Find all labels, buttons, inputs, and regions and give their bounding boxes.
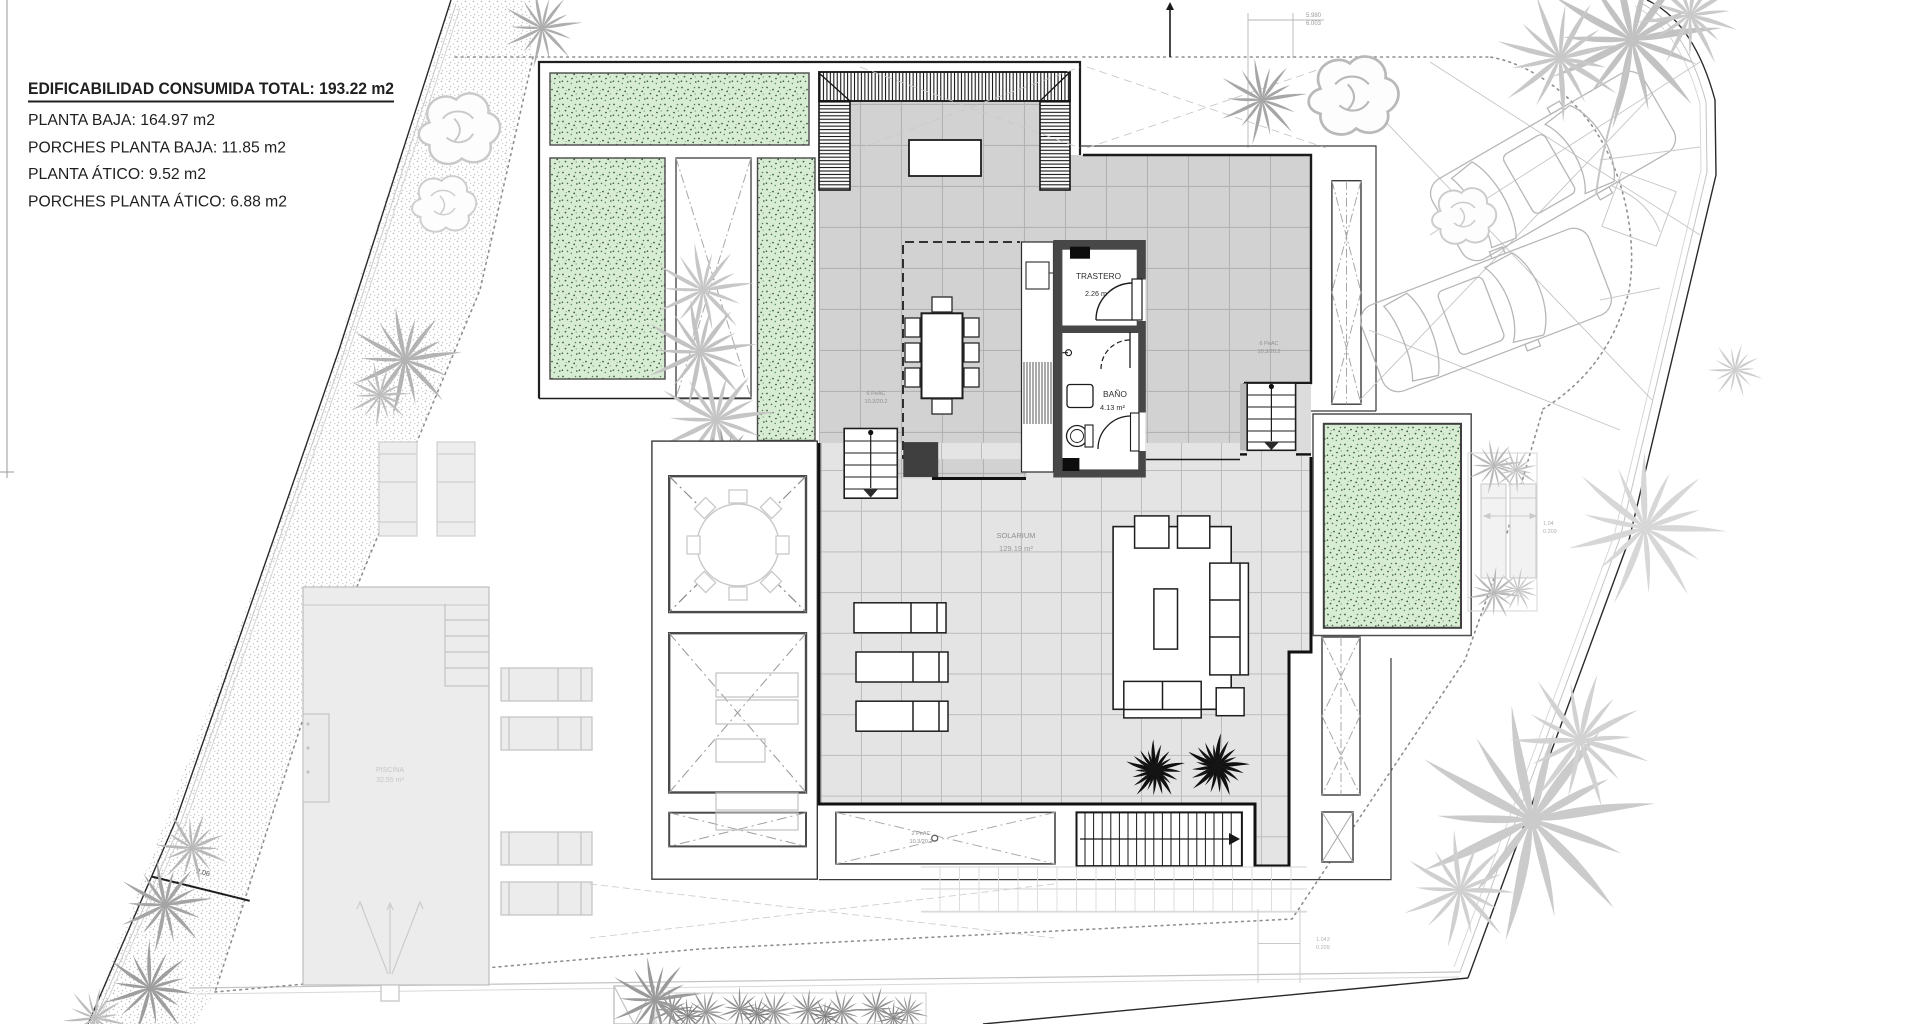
svg-text:PORCHES PLANTA ÁTICO: 6.88 m2: PORCHES PLANTA ÁTICO: 6.88 m2: [28, 194, 287, 211]
svg-text:0.209: 0.209: [1316, 945, 1330, 951]
svg-text:10.3/20.2: 10.3/20.2: [1258, 349, 1281, 355]
svg-text:6 PeAC: 6 PeAC: [1260, 341, 1279, 347]
svg-text:4.13 m²: 4.13 m²: [1100, 405, 1126, 412]
svg-text:SOLARIUM: SOLARIUM: [997, 531, 1036, 540]
svg-text:32.55 m²: 32.55 m²: [376, 777, 404, 784]
svg-text:EDIFICABILIDAD CONSUMIDA TOTAL: EDIFICABILIDAD CONSUMIDA TOTAL: 193.22 m…: [28, 80, 394, 98]
svg-text:BAÑO: BAÑO: [1103, 390, 1127, 399]
svg-text:6 PeAC: 6 PeAC: [867, 391, 886, 397]
svg-text:1.043: 1.043: [1316, 937, 1330, 943]
svg-text:TRASTERO: TRASTERO: [1076, 272, 1121, 281]
svg-text:2 PeAC: 2 PeAC: [912, 831, 931, 837]
svg-text:0.209: 0.209: [1543, 529, 1557, 535]
svg-text:6.003: 6.003: [1306, 21, 1322, 27]
svg-text:2.26 m: 2.26 m: [1085, 291, 1107, 298]
svg-text:129.19 m²: 129.19 m²: [999, 546, 1034, 553]
svg-text:PISCINA: PISCINA: [376, 767, 404, 774]
svg-text:PORCHES PLANTA BAJA: 11.85 m2: PORCHES PLANTA BAJA: 11.85 m2: [28, 140, 286, 157]
svg-text:5.980: 5.980: [1306, 13, 1322, 19]
svg-text:1.04: 1.04: [1543, 521, 1554, 527]
svg-text:PLANTA BAJA: 164.97 m2: PLANTA BAJA: 164.97 m2: [28, 112, 215, 129]
svg-text:PLANTA ÁTICO: 9.52 m2: PLANTA ÁTICO: 9.52 m2: [28, 166, 206, 183]
svg-text:10.3/20.2: 10.3/20.2: [865, 399, 888, 405]
svg-text:10.3/20.2: 10.3/20.2: [910, 839, 933, 845]
